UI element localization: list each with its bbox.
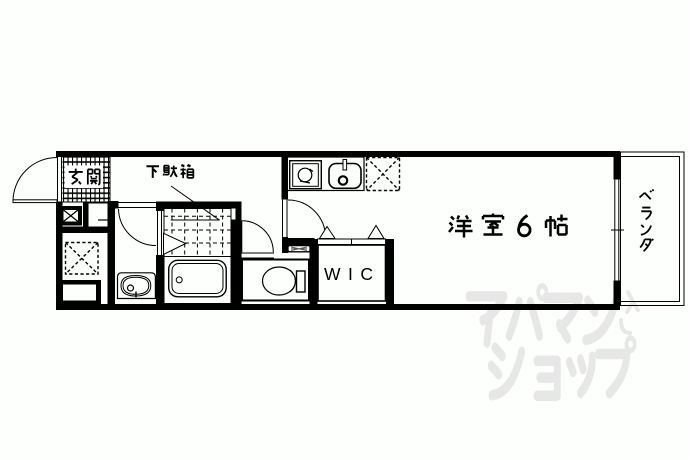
svg-text:WIC: WIC [324, 264, 381, 284]
